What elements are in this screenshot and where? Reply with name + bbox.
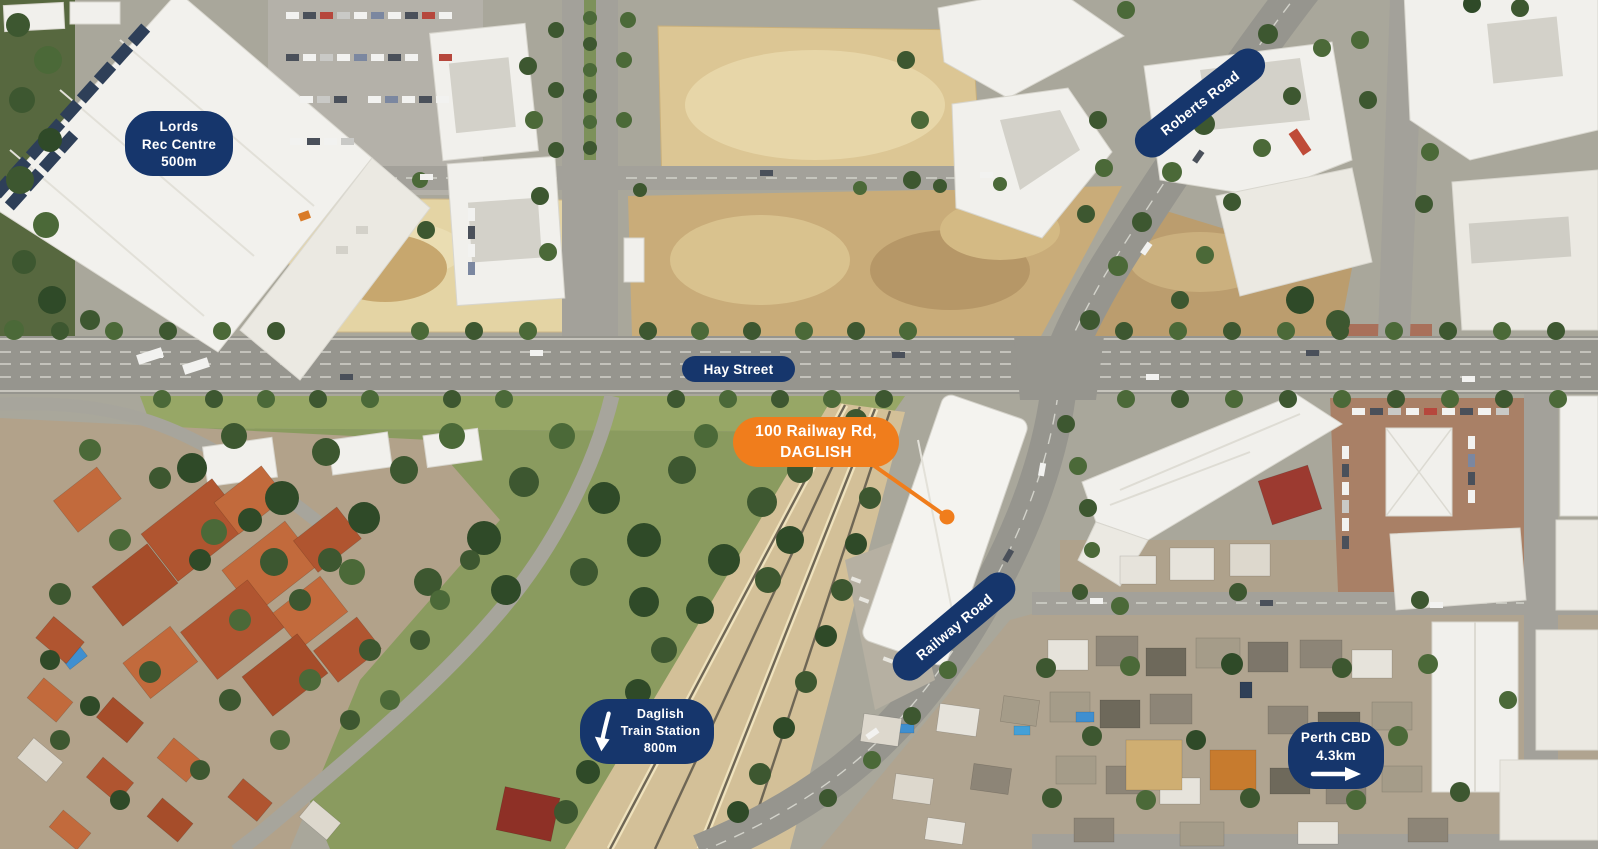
lords-line-3: 500m	[125, 153, 233, 171]
lords-rec-centre-badge: Lords Rec Centre 500m	[125, 111, 233, 176]
daglish-line-2: Train Station	[617, 723, 704, 740]
down-arrow-icon	[593, 709, 617, 755]
perth-line-2: 4.3km	[1288, 747, 1384, 765]
property-line-1: 100 Railway Rd,	[733, 421, 899, 442]
lords-line-2: Rec Centre	[125, 136, 233, 154]
hay-street-label: Hay Street	[682, 356, 795, 382]
daglish-line-3: 800m	[617, 740, 704, 757]
right-arrow-icon	[1309, 766, 1363, 782]
aerial-map: Lords Rec Centre 500m Roberts Road Hay S…	[0, 0, 1598, 849]
perth-line-1: Perth CBD	[1288, 729, 1384, 747]
perth-cbd-badge: Perth CBD 4.3km	[1288, 722, 1384, 789]
property-callout: 100 Railway Rd, DAGLISH	[733, 417, 899, 467]
daglish-station-badge: Daglish Train Station 800m	[580, 699, 714, 764]
lords-line-1: Lords	[125, 118, 233, 136]
hay-street-road	[0, 336, 1598, 394]
property-line-2: DAGLISH	[733, 442, 899, 463]
daglish-line-1: Daglish	[617, 706, 704, 723]
